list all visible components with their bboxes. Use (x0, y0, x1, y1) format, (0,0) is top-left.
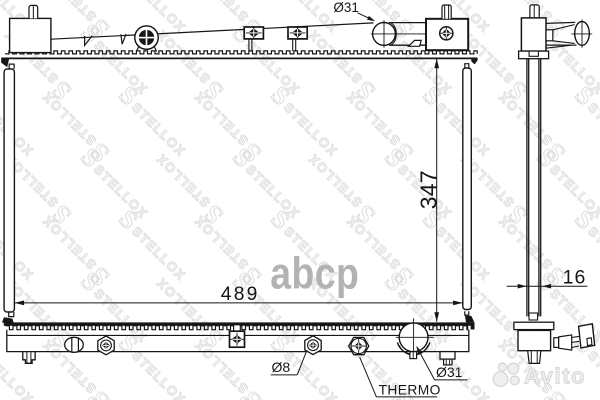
svg-text:489: 489 (221, 284, 260, 305)
svg-text:Ø31: Ø31 (333, 0, 359, 15)
svg-text:abcp: abcp (270, 248, 359, 298)
svg-text:Ø31: Ø31 (436, 364, 463, 380)
svg-text:Avito: Avito (524, 364, 586, 389)
svg-text:THERMO: THERMO (379, 383, 441, 398)
svg-text:16: 16 (563, 267, 587, 289)
svg-text:Ø8: Ø8 (272, 359, 291, 375)
svg-text:347: 347 (416, 170, 442, 209)
